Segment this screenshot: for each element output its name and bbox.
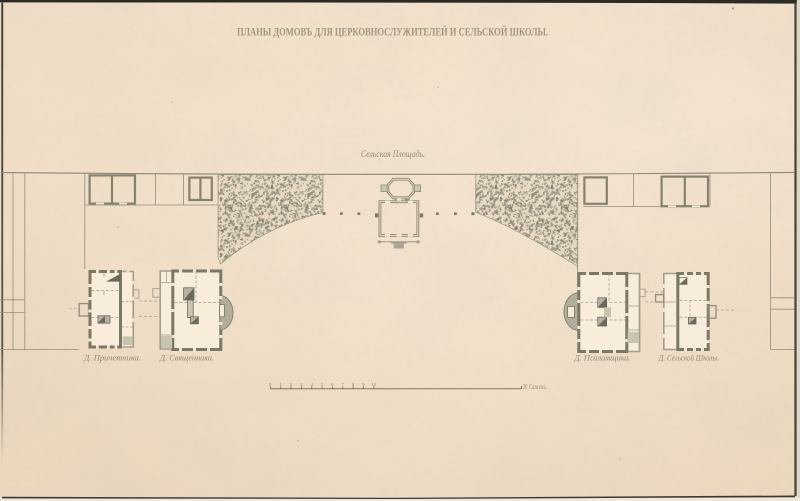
svg-text:ПЛАНЫ ДОМОВЪ ДЛЯ ЦЕРКОВНОСЛУЖИ: ПЛАНЫ ДОМОВЪ ДЛЯ ЦЕРКОВНОСЛУЖИТЕЛЕЙ И СЕ… [237, 25, 548, 39]
svg-text:Сельская Площадь.: Сельская Площадь. [361, 149, 425, 160]
svg-text:2: 2 [290, 382, 292, 387]
svg-text:Д. Псаломщика.: Д. Псаломщика. [573, 354, 630, 363]
svg-text:Д. Причетника.: Д. Причетника. [83, 354, 141, 363]
svg-text:10: 10 [372, 382, 377, 387]
svg-text:Д. Священника.: Д. Священника. [159, 354, 214, 363]
svg-text:30 Саженъ.: 30 Саженъ. [522, 382, 547, 391]
svg-text:1: 1 [280, 382, 282, 387]
svg-text:Д. Сельской Школы.: Д. Сельской Школы. [658, 354, 719, 363]
